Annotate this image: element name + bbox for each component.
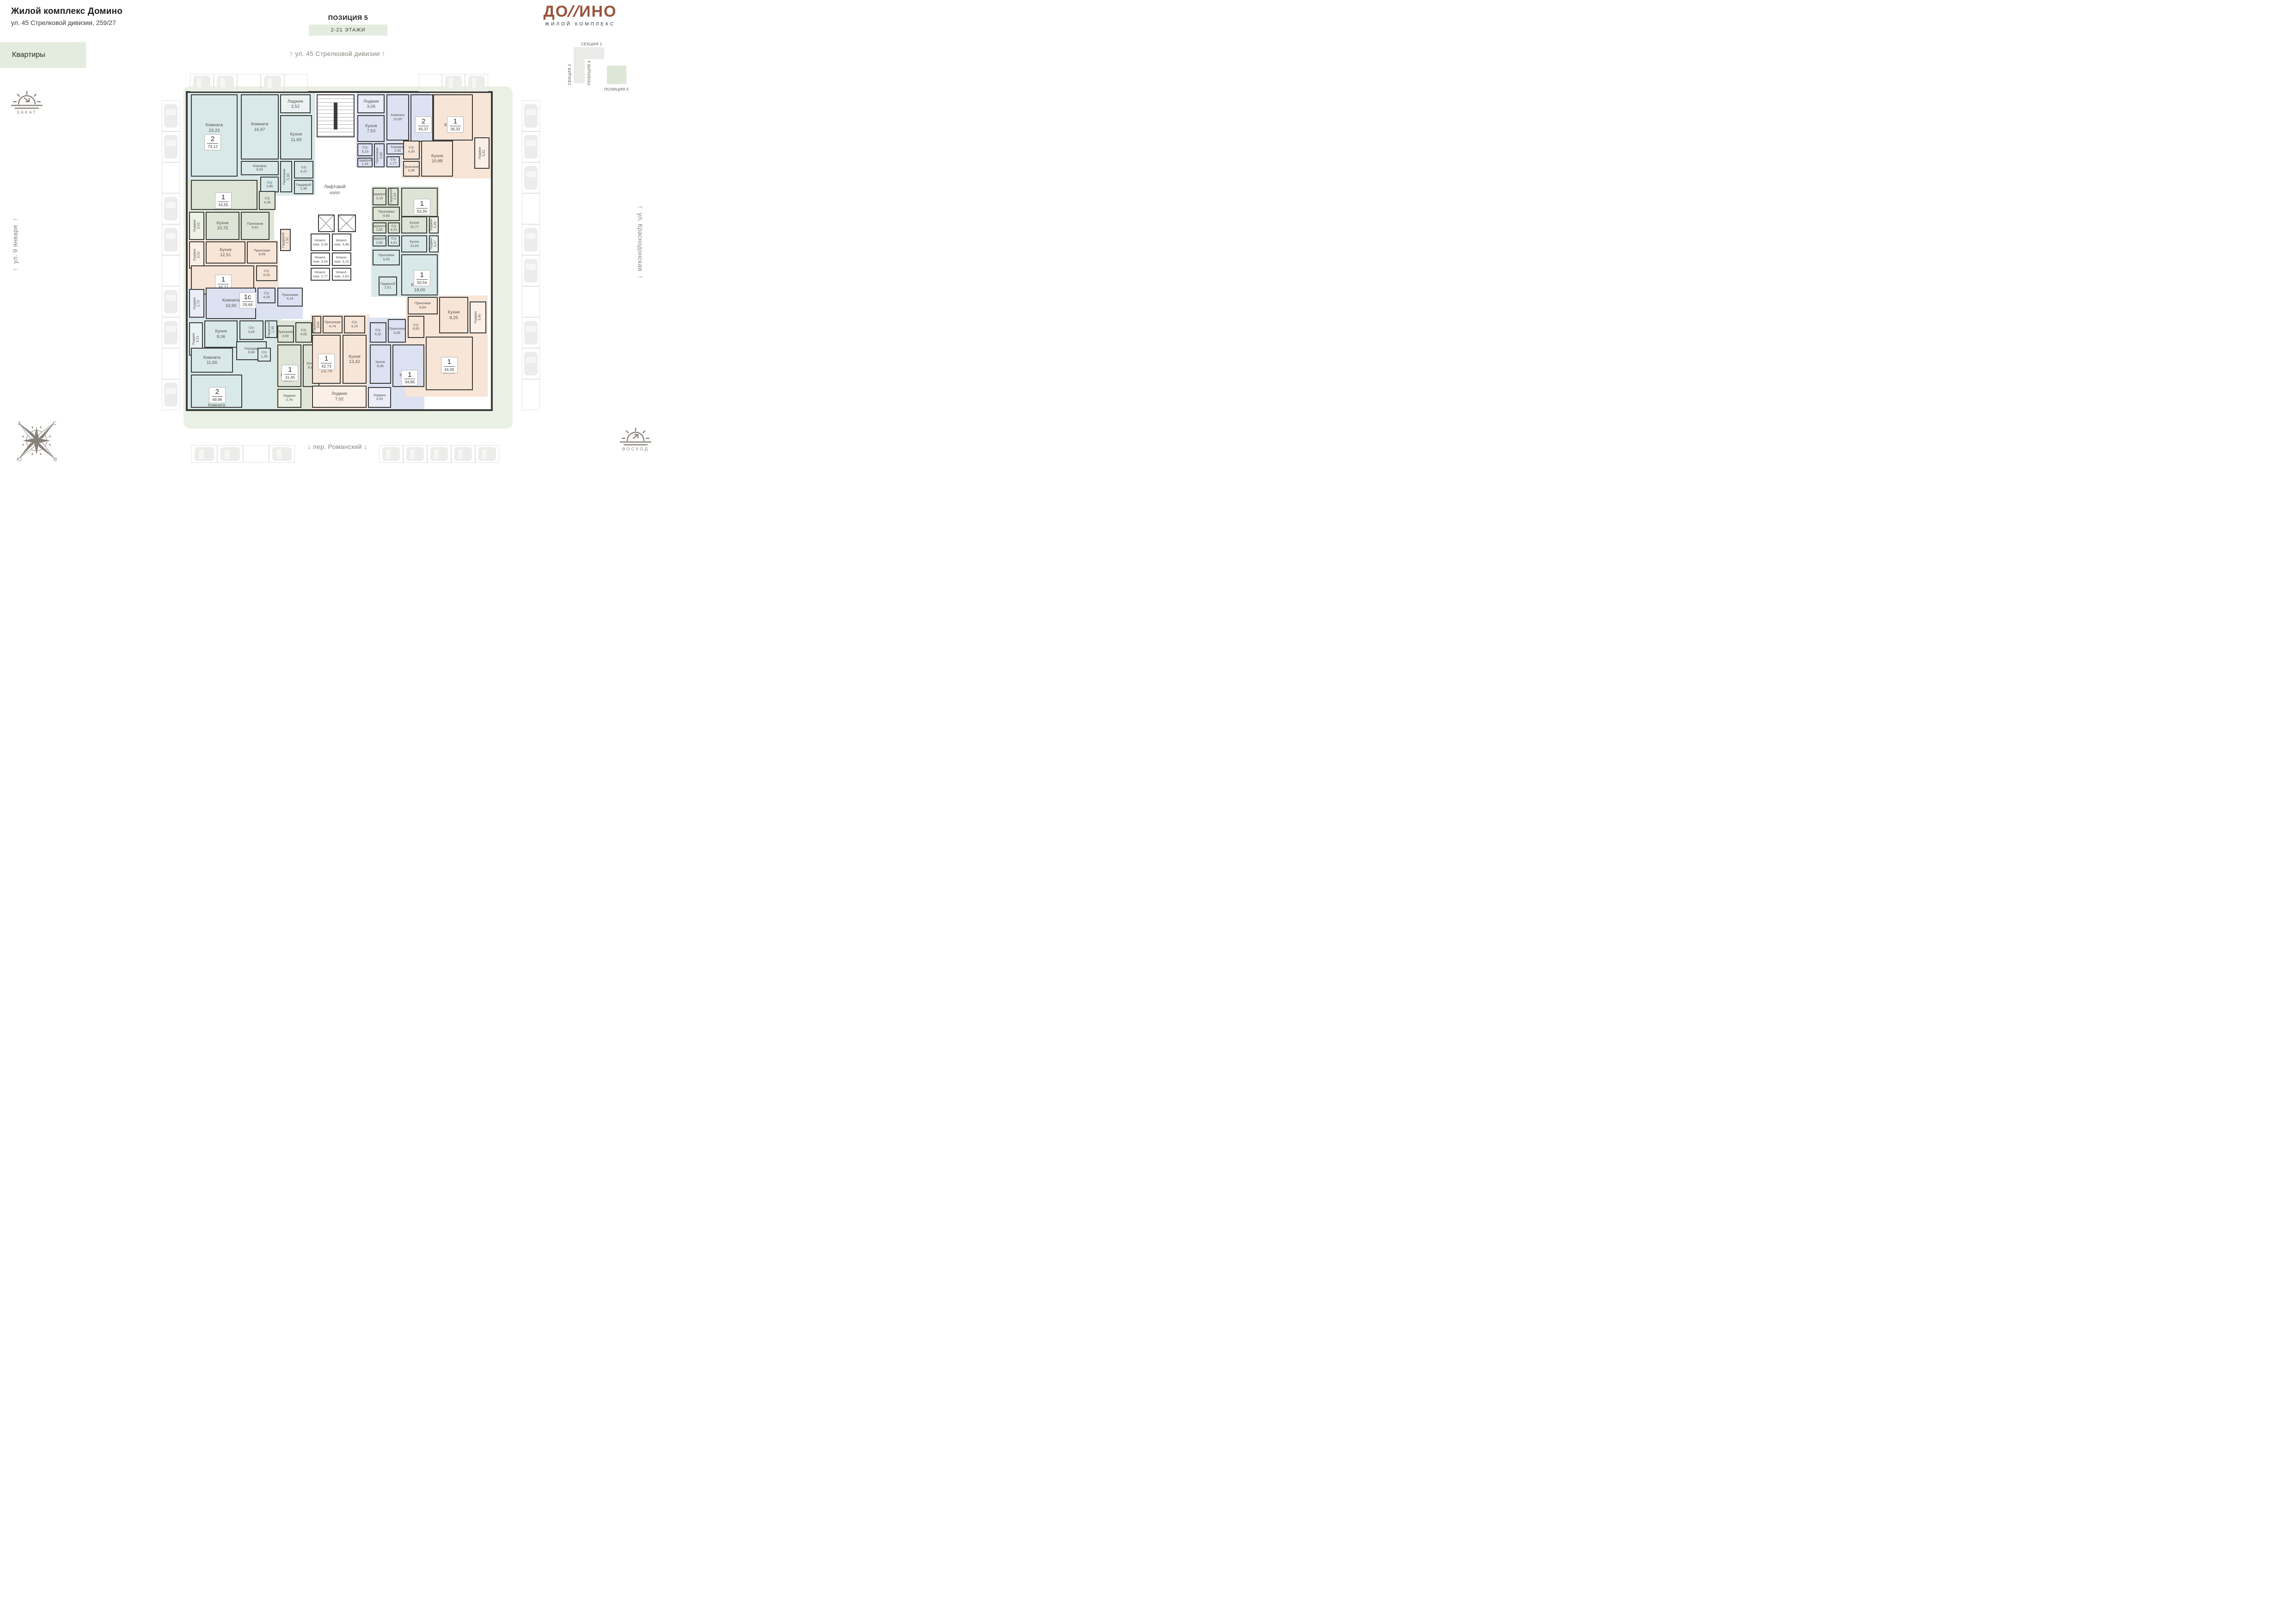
room-гардероб-1-26: Гардероб1,26 [357, 158, 373, 167]
car-window [526, 171, 535, 177]
badge-area: 44,30 [444, 366, 455, 372]
arrow-left-icon: ↑ [12, 268, 19, 271]
badge-area: 74,12 [207, 143, 218, 149]
nonresidential-room-3-48: Нежил.пом. 3,48 [332, 233, 352, 251]
room-label: Гардероб2,82 [373, 224, 386, 232]
room-прихожая-3-60: Прихожая3,60 [277, 326, 294, 343]
room-label: С/у4,20 [263, 291, 270, 299]
parking-right-stall [522, 193, 540, 224]
room-label: Прихожая5,46 [403, 165, 419, 173]
room-label: Прихожая9,93 [378, 253, 394, 261]
badge-area: 29,69 [242, 301, 253, 307]
room-label: Лоджия2,70 [193, 297, 201, 310]
car-window [472, 78, 476, 88]
room-label: Лоджия3,47 [429, 238, 437, 250]
room-label: С/у2,86 [266, 181, 273, 189]
badge-rooms: 2 [207, 135, 218, 143]
room-прихожая-8-64: Прихожая8,64 [408, 297, 438, 314]
apt-74-badge[interactable]: 274,12 [204, 134, 221, 150]
car-window [166, 295, 175, 301]
car-window [166, 233, 175, 239]
badge-rooms: 1с [242, 294, 253, 301]
elevator-shaft [338, 215, 356, 232]
badge-area: 34,86 [404, 379, 415, 384]
logo-subtitle: ЖИЛОЙ КОМПЛЕКС [511, 22, 649, 27]
arrow-down-icon: ↓ [364, 443, 367, 451]
parking-top-right-stall [419, 74, 442, 92]
room-label: Комната11,56 [203, 355, 220, 366]
room-label: Лоджия3,00 [373, 393, 386, 401]
street-left: ↑ ул. 9 января ↑ [12, 201, 19, 289]
room-лоджия-3-46: Лоджия3,46 [429, 216, 439, 234]
parking-left-stall [162, 162, 180, 193]
room-label: Гардероб1,39 [267, 322, 275, 337]
sunrise-label: ВОСХОД [619, 447, 652, 452]
car-icon [264, 76, 281, 90]
apt-5054-badge[interactable]: 150,54 [414, 270, 430, 286]
room-label: Комната16,97 [251, 122, 268, 132]
room-label: С/у4,32 [374, 328, 381, 336]
room-label: С/у1,26 [261, 350, 268, 358]
room-су-4-24: С/у4,24 [344, 316, 365, 333]
arrow-left-icon: ↑ [12, 218, 19, 221]
room-кухня-12-51: Кухня12,51 [206, 241, 245, 264]
car-window [526, 264, 535, 270]
car-window [199, 449, 204, 459]
room-label: Лоджия3,02 [193, 249, 201, 261]
room-label: Кухня7,53 [365, 123, 377, 134]
room-label: Лоджия3,46 [429, 219, 437, 231]
car-icon [524, 166, 538, 190]
car-icon [164, 290, 178, 313]
room-label: Лоджия3,40 [474, 311, 482, 324]
parking-top-left-stall [237, 74, 261, 92]
sunrise-icon: ВОСХОД [619, 425, 652, 452]
room-су-4-36: С/у4,36 [259, 191, 276, 210]
badge-rooms: 1 [404, 371, 415, 379]
room-label: Кухня8,25 [448, 310, 459, 320]
car-window [166, 109, 175, 115]
room-су-4-83: С/у4,83 [408, 316, 424, 338]
car-window [410, 449, 415, 459]
room-label: Гардероб1,51 [282, 233, 289, 248]
room-прихожая-4-24: Прихожая4,24 [277, 288, 303, 307]
apt-2969-badge[interactable]: 1с29,69 [239, 292, 256, 308]
car-window [225, 449, 230, 459]
room-label: С/у4,20 [263, 269, 270, 277]
room-гардероб-1-39: Гардероб1,39 [265, 320, 277, 338]
arrow-right-icon: ↑ [637, 275, 644, 279]
room-label: Прихожая3,60 [277, 330, 294, 338]
room-label: Лоджия3,52 [288, 99, 303, 110]
site-map-section2-building [574, 59, 585, 83]
car-window [197, 78, 202, 88]
car-icon [430, 447, 448, 461]
badge-rooms: 1 [444, 358, 455, 366]
room-прихожая-6-61: Прихожая6,61 [241, 212, 269, 240]
room-label: С/у4,22 [300, 166, 307, 173]
room-label: Гардероб2,24 [389, 189, 397, 204]
badge-rooms: 1 [218, 276, 229, 283]
site-map-section2-label: СЕКЦИЯ 2 [567, 59, 572, 85]
parking-bottom-left-stall [243, 445, 269, 463]
room-label: Кухня8,49 [376, 360, 385, 368]
floors-badge: 2-21 ЭТАЖИ [309, 25, 387, 36]
room-label: Гардероб2,61 [380, 282, 395, 290]
badge-area: 45,37 [418, 126, 429, 131]
room-label: Кухня10,75 [217, 221, 228, 231]
room-су-4-20: С/у4,20 [256, 265, 277, 281]
sunset-icon: ЗАКАТ [11, 89, 43, 115]
site-map-position5-label: ПОЗИЦИЯ 5 [604, 87, 629, 92]
position-title: ПОЗИЦИЯ 5 [302, 14, 394, 21]
car-window [166, 388, 175, 394]
car-icon [220, 447, 240, 461]
badge-area: 53,26 [416, 208, 428, 214]
room-су-1-77: С/у1,77 [386, 156, 400, 167]
car-window [482, 449, 487, 459]
room-label: Комната19,90 [222, 298, 239, 308]
car-icon [195, 447, 214, 461]
car-icon [164, 228, 178, 252]
apt-3145-badge[interactable]: 131,45 [282, 365, 298, 381]
room-label: Коридор6,84 [245, 347, 258, 355]
room-су-4-20: С/у4,20 [257, 288, 276, 303]
floor-plan: Комната23,23Комната16,97Лоджия3,52Кухня1… [186, 91, 493, 411]
room-label: Кухня10,88 [431, 154, 443, 164]
room-label: С/у4,30 [408, 146, 415, 154]
room-label: Лоджия7,02 [331, 391, 347, 402]
car-window [166, 326, 175, 332]
car-icon [524, 321, 538, 344]
site-map: СЕКЦИЯ 1 СЕКЦИЯ 2 ПОЗИЦИЯ 4 ПОЗИЦИЯ 5 [552, 42, 654, 102]
nonresidential-room-2-83: Нежил.пом. 2,83 [332, 268, 352, 281]
room-гардероб-3-04: Гардероб3,04 [312, 316, 321, 333]
room-су-1-26: С/у1,26 [257, 348, 271, 362]
car-window [166, 202, 175, 208]
nonresidential-room-3-39: Нежил.пом. 3,39 [311, 233, 331, 251]
room-комната-10-65: Комната10,65 [386, 94, 409, 140]
car-icon [164, 104, 178, 128]
elevator-shaft [318, 215, 335, 232]
badge-area: 36,32 [450, 126, 461, 131]
room-гардероб-2-24: Гардероб2,24 [388, 188, 398, 205]
room-label: Коридор2,91 [391, 145, 404, 153]
badge-area: 50,54 [416, 279, 428, 285]
car-icon [406, 447, 424, 461]
car-window [276, 449, 282, 459]
page-title: Жилой комплекс Домино [11, 6, 122, 17]
car-icon [164, 197, 178, 221]
room-label: С/у4,00 [300, 328, 307, 336]
car-window [166, 140, 175, 146]
badge-rooms: 2 [418, 118, 429, 125]
room-label: Кухня13,42 [349, 354, 360, 365]
car-icon [164, 135, 178, 159]
car-window [449, 78, 453, 88]
room-label: Лоджия3,42 [478, 147, 486, 160]
room-су-4-22: С/у4,22 [294, 161, 314, 178]
room-коридор-6-50: Коридор6,50 [241, 161, 279, 175]
compass-icon: З С Ю В [11, 418, 62, 463]
room-лоджия-3-47: Лоджия3,47 [429, 235, 439, 253]
room-label: Гардероб2,30 [296, 183, 311, 191]
arrow-down-icon: ↓ [307, 443, 311, 451]
car-window [220, 78, 225, 88]
room-label: Комната23,23 [206, 123, 223, 133]
room-label: Лоджия3,21 [192, 333, 200, 345]
logo-domino: ДО//ИНО [511, 4, 649, 19]
apt-4537-badge[interactable]: 245,37 [415, 117, 432, 133]
room-прихожая-5-06: Прихожая5,06 [388, 319, 406, 343]
room-су-3-13: С/у3,13 [357, 143, 373, 156]
compass-s: Ю [17, 457, 22, 462]
room-label: Кухня12,51 [220, 247, 231, 258]
badge-rooms: 1 [416, 200, 428, 208]
room-label: С/у4,24 [351, 320, 358, 328]
room-label: Гардероб3,16 [373, 192, 386, 200]
car-icon [524, 228, 538, 252]
parking-right-stall [522, 286, 540, 317]
badge-area: 49,96 [212, 396, 223, 402]
room-label: Гардероб1,26 [357, 159, 373, 166]
room-гардероб-2-82: Гардероб2,82 [373, 222, 386, 233]
badge-area: 43,55 [218, 202, 229, 207]
room-label: С/у3,64 [248, 326, 255, 334]
car-icon [217, 76, 234, 90]
badge-area: 31,45 [284, 374, 295, 380]
room-label: С/у1,77 [390, 158, 397, 166]
room-label: Кухня10,83 [410, 240, 419, 248]
room-лоджия-3-06: Лоджия3,06 [357, 94, 385, 113]
badge-rooms: 1 [218, 194, 229, 201]
room-прихожая-5-46: Прихожая5,46 [403, 161, 420, 177]
street-top: ↑ ул. 45 Стрелковой дивизии ↑ [259, 50, 416, 58]
room-label: Кухня8,06 [215, 329, 227, 339]
room-гардероб-3-16: Гардероб3,16 [373, 188, 386, 205]
room-прихожая-3-60: Прихожая3,60 [374, 143, 385, 167]
apt-4430-badge[interactable]: 144,30 [441, 357, 458, 373]
apt-5326-badge[interactable]: 153,26 [414, 199, 430, 215]
apt-4273-badge[interactable]: 142,73 [318, 354, 335, 370]
room-label: Гардероб3,04 [312, 317, 320, 332]
room-комната-11-56: Комната11,56 [191, 348, 233, 373]
car-icon [524, 104, 538, 128]
car-icon [524, 352, 538, 375]
room-су-4-61: С/у4,61 [388, 222, 400, 233]
room-label: С/у4,83 [412, 323, 419, 331]
car-icon [272, 447, 292, 461]
parking-left-stall [162, 348, 180, 379]
compass-w: З [18, 421, 21, 426]
room-кухня-8-25: Кухня8,25 [439, 297, 468, 333]
site-map-section1-label: СЕКЦИЯ 1 [581, 42, 602, 46]
street-right: ↑ ул. Краснодонская ↑ [637, 198, 644, 286]
car-icon [382, 447, 400, 461]
room-прихожая-5-39: Прихожая5,39 [280, 161, 292, 192]
room-су-4-00: С/у4,00 [295, 322, 312, 343]
car-icon [524, 259, 538, 283]
room-label: С/у4,61 [391, 224, 398, 232]
room-label: Прихожая4,24 [282, 293, 298, 301]
room-комната-16-97: Комната16,97 [241, 94, 279, 159]
car-icon [454, 447, 472, 461]
room-су-4-32: С/у4,32 [370, 322, 386, 343]
room-кухня-10-77: Кухня10,77 [401, 216, 427, 234]
room-лоджия-3-02: Лоджия3,02 [189, 212, 204, 240]
room-label: Прихожая6,61 [247, 222, 263, 230]
room-кухня-11-69: Кухня11,69 [280, 115, 312, 160]
car-window [526, 109, 535, 115]
compass-e: В [54, 457, 57, 462]
room-су-4-61: С/у4,61 [388, 235, 400, 246]
room-label: С/у3,13 [361, 146, 368, 154]
room-су-2-86: С/у2,86 [260, 177, 278, 192]
room-лоджия-7-02: Лоджия7,02 [312, 386, 367, 408]
car-icon [478, 447, 496, 461]
room-лоджия-3-02: Лоджия3,02 [189, 241, 204, 268]
room-прихожая-8-99: Прихожая8,99 [247, 241, 277, 264]
car-icon [164, 383, 178, 406]
car-icon [193, 76, 210, 90]
badge-rooms: 1 [416, 271, 428, 279]
car-icon [164, 321, 178, 344]
car-window [526, 140, 535, 146]
room-label: Гардероб2,82 [373, 237, 386, 245]
room-су-4-30: С/у4,30 [403, 141, 420, 160]
room-кухня-10-75: Кухня10,75 [206, 212, 239, 240]
room-label: Прихожая8,99 [254, 249, 270, 257]
car-icon [445, 76, 462, 90]
room-label: Комната10,65 [391, 113, 404, 121]
room-кухня-8-06: Кухня8,06 [204, 320, 238, 347]
sunset-label: ЗАКАТ [11, 110, 43, 115]
lift-hall-label: Лифтовойхолл [312, 184, 357, 196]
room-лоджия-3-52: Лоджия3,52 [280, 94, 311, 113]
room-label: Кухня10,77 [410, 221, 419, 229]
room-label: Кухня11,69 [290, 132, 302, 142]
car-icon [524, 135, 538, 159]
room-лоджия-3-40: Лоджия3,40 [470, 301, 486, 333]
car-window [526, 326, 535, 332]
car-window [458, 449, 463, 459]
badge-rooms: 1 [450, 118, 461, 125]
room-label: Лоджия2,76 [283, 394, 295, 402]
nonresidential-room-2-77: Нежил.пом. 2,77 [311, 268, 331, 281]
car-window [526, 357, 535, 363]
badge-rooms: 2 [212, 388, 223, 396]
room-лоджия-2-70: Лоджия2,70 [189, 289, 204, 318]
page-address: ул. 45 Стрелковой дивизии, 259/27 [11, 19, 116, 26]
room-label: Прихожая4,74 [325, 320, 341, 328]
room-label: Прихожая9,93 [378, 210, 394, 218]
arrow-up-icon: ↑ [289, 50, 293, 58]
apt-3632-badge[interactable]: 136,32 [447, 117, 464, 133]
room-лоджия-3-42: Лоджия3,42 [474, 137, 490, 169]
room-гардероб-1-51: Гардероб1,51 [280, 229, 291, 251]
stairwell-divider [334, 103, 337, 129]
room-label: С/у4,61 [391, 237, 398, 245]
car-window [526, 233, 535, 239]
arrow-up-icon: ↑ [382, 50, 386, 58]
room-кухня-7-53: Кухня7,53 [357, 115, 385, 142]
apt-3486-badge[interactable]: 134,86 [401, 370, 418, 386]
room-label: Комната15,60 [208, 403, 225, 408]
room-гардероб-2-61: Гардероб2,61 [379, 276, 397, 295]
nonresidential-room-3-04: Нежил.пом. 3,04 [311, 252, 331, 266]
parking-top-left-stall [284, 74, 308, 92]
room-кухня-13-42: Кухня13,42 [343, 335, 367, 384]
room-прихожая-9-93: Прихожая9,93 [373, 207, 400, 221]
car-icon [468, 76, 485, 90]
room-label: С/у4,36 [264, 197, 271, 204]
car-window [386, 449, 391, 459]
site-map-position4-label: ПОЗИЦИЯ 4 [587, 59, 591, 85]
room-label: Прихожая3,60 [375, 147, 383, 164]
nonresidential-room-3-10: Нежил.пом. 3,10 [332, 252, 352, 266]
room-прихожая-9-93: Прихожая9,93 [373, 250, 400, 265]
badge-rooms: 1 [284, 366, 295, 374]
parking-left-stall [162, 255, 180, 286]
floor-plan-canvas: Комната23,23Комната16,97Лоджия3,52Кухня1… [188, 93, 491, 409]
room-label: Лоджия3,06 [363, 99, 379, 110]
room-су-3-64: С/у3,64 [239, 320, 263, 339]
room-кухня-10-83: Кухня10,83 [401, 235, 427, 253]
room-label: Прихожая8,64 [415, 301, 431, 309]
room-label: Коридор6,50 [253, 164, 267, 172]
arrow-right-icon: ↑ [637, 205, 644, 209]
site-map-section1-building [574, 47, 604, 59]
site-map-position5-building[interactable] [607, 66, 626, 84]
badge-rooms: 1 [321, 355, 332, 362]
room-прихожая-4-74: Прихожая4,74 [323, 316, 343, 333]
room-кухня-10-88: Кухня10,88 [421, 141, 453, 177]
car-window [434, 449, 439, 459]
room-label: Лоджия3,02 [193, 220, 201, 232]
room-гардероб-2-30: Гардероб2,30 [294, 180, 314, 194]
room-label: Прихожая5,06 [389, 327, 405, 335]
tab-apartments[interactable]: Квартиры [0, 42, 86, 68]
compass-n: С [53, 421, 56, 426]
room-лоджия-2-76: Лоджия2,76 [277, 389, 301, 408]
page: Жилой комплекс Домино ул. 45 Стрелковой … [0, 0, 656, 463]
car-window [268, 78, 272, 88]
parking-right-stall [522, 379, 540, 410]
room-лоджия-3-00: Лоджия3,00 [368, 387, 391, 407]
room-кухня-8-49: Кухня8,49 [370, 344, 391, 384]
room-гардероб-2-82: Гардероб2,82 [373, 235, 386, 246]
room-label: Прихожая5,39 [282, 169, 290, 185]
apt-43-badge[interactable]: 143,55 [215, 192, 232, 209]
apt-4996-badge[interactable]: 249,96 [209, 387, 226, 403]
badge-area: 42,73 [321, 363, 332, 369]
